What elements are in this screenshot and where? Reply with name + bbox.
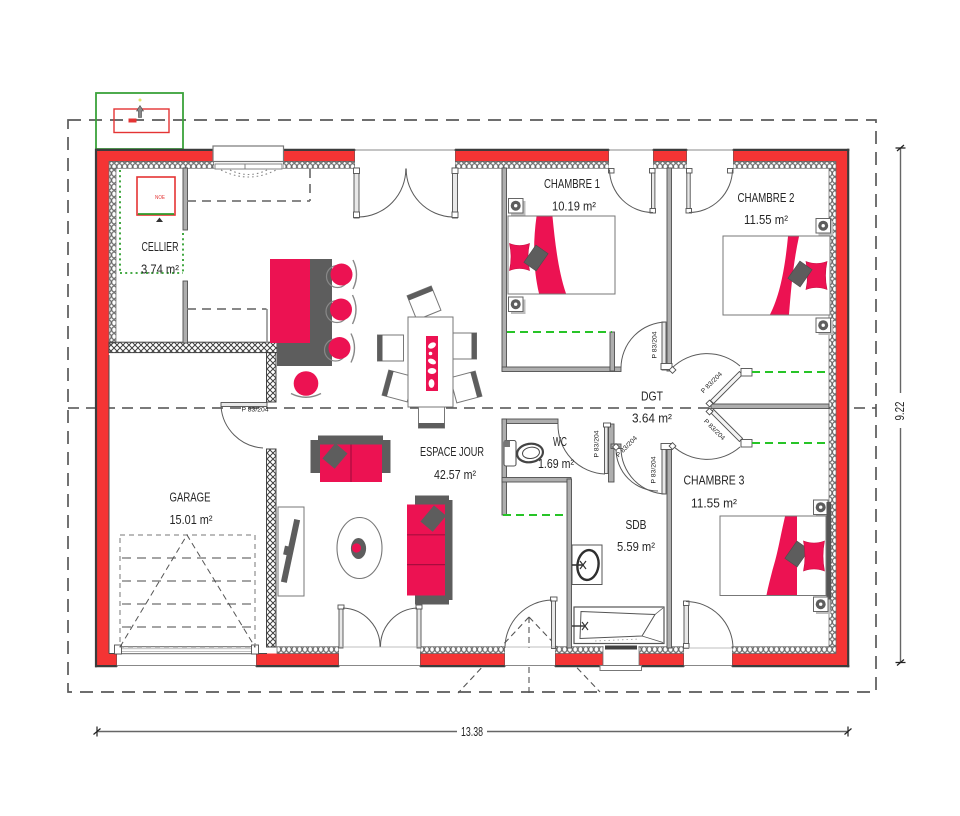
svg-text:SDB: SDB [626,518,647,532]
svg-text:3.74 m²: 3.74 m² [141,263,179,277]
svg-text:NOE: NOE [155,195,166,201]
svg-text:11.55 m²: 11.55 m² [744,213,788,227]
svg-text:CHAMBRE 2: CHAMBRE 2 [738,191,795,205]
svg-text:WC: WC [553,435,567,449]
svg-text:CHAMBRE 1: CHAMBRE 1 [544,177,600,191]
svg-text:P 83/204: P 83/204 [594,430,601,457]
svg-text:11.55 m²: 11.55 m² [691,497,737,511]
svg-text:DGT: DGT [641,390,663,404]
svg-text:P 83/204: P 83/204 [651,456,658,483]
svg-text:CHAMBRE 3: CHAMBRE 3 [684,474,745,488]
svg-text:13.38: 13.38 [461,725,483,739]
svg-text:1.69 m²: 1.69 m² [538,457,574,471]
svg-text:9.22: 9.22 [893,401,907,420]
svg-text:3.64 m²: 3.64 m² [632,412,672,426]
svg-text:P 83/204: P 83/204 [652,331,659,358]
svg-text:ESPACE JOUR: ESPACE JOUR [420,445,484,459]
svg-text:5.59 m²: 5.59 m² [617,540,655,554]
svg-text:42.57 m²: 42.57 m² [434,468,476,482]
svg-text:15.01 m²: 15.01 m² [170,513,213,527]
svg-text:CELLIER: CELLIER [142,240,179,254]
svg-text:P 83/204: P 83/204 [242,407,269,414]
svg-text:10.19 m²: 10.19 m² [552,200,596,214]
svg-text:GARAGE: GARAGE [170,491,211,505]
